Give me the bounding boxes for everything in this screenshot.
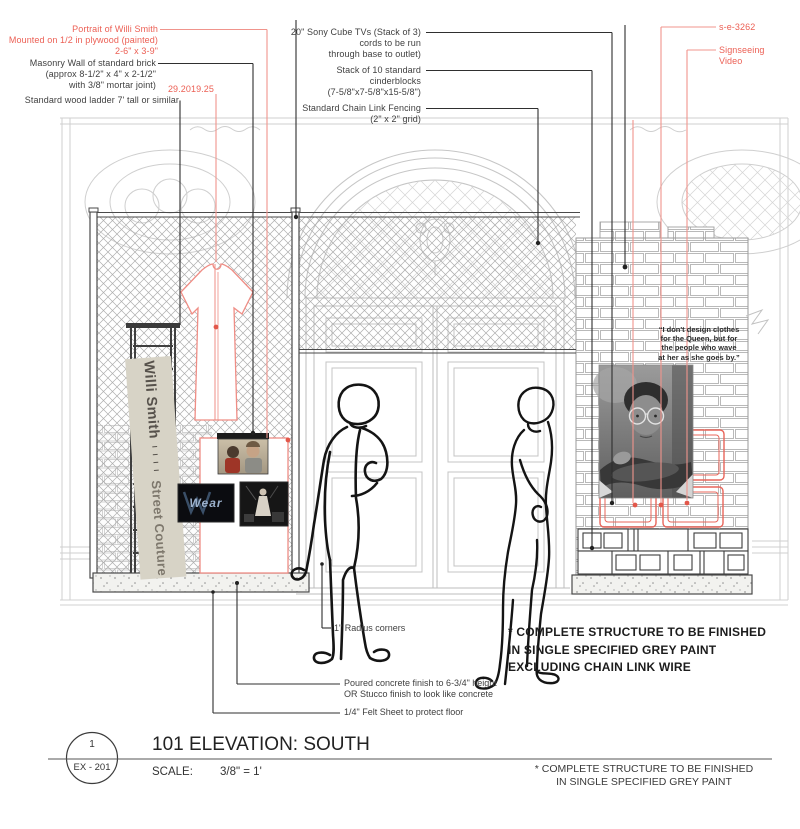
willi-smith-portrait <box>593 365 693 498</box>
annotation-video-id: s-e-3262 <box>719 22 789 33</box>
annotation-line: through base to outlet) <box>0 49 421 60</box>
annotation-line: Stack of 10 standard <box>0 65 421 76</box>
annotation-concrete: Poured concrete finish to 6-3/4" height … <box>344 678 497 700</box>
finish-note-small: * COMPLETE STRUCTURE TO BE FINISHED IN S… <box>516 763 772 789</box>
annotation-cinderblocks: Stack of 10 standard cinderblocks (7-5/8… <box>0 65 421 98</box>
wear-screen-label: Wear <box>181 489 231 517</box>
leader-lines-red <box>160 27 716 503</box>
drawing-title: 101 ELEVATION: SOUTH <box>152 734 370 756</box>
quote-line: for the Queen, but for <box>636 334 762 343</box>
annotation-line: cinderblocks <box>0 76 421 87</box>
annotation-line: (2" x 2" grid) <box>0 114 421 125</box>
finish-note-small-line: IN SINGLE SPECIFIED GREY PAINT <box>516 776 772 789</box>
annotation-line: Poured concrete finish to 6-3/4" height <box>344 678 497 689</box>
finish-note: * COMPLETE STRUCTURE TO BE FINISHED IN S… <box>508 624 788 677</box>
scale-label: SCALE: <box>152 766 193 778</box>
drawing-number: 1 <box>67 739 117 750</box>
sheet-number: EX - 201 <box>62 762 122 773</box>
annotation-line: OR Stucco finish to look like concrete <box>344 689 497 700</box>
annotation-felt: 1/4" Felt Sheet to protect floor <box>344 707 463 718</box>
willi-smith-quote: “I don't design clothes for the Queen, b… <box>636 325 762 362</box>
annotation-tvs: 20" Sony Cube TVs (Stack of 3) cords to … <box>0 27 421 60</box>
annotation-line: cords to be run <box>0 38 421 49</box>
finish-note-small-line: * COMPLETE STRUCTURE TO BE FINISHED <box>516 763 772 776</box>
annotation-line: Standard Chain Link Fencing <box>0 103 421 114</box>
annotation-line: 20" Sony Cube TVs (Stack of 3) <box>0 27 421 38</box>
annotation-fencing: Standard Chain Link Fencing (2" x 2" gri… <box>0 103 421 125</box>
annotation-signseeing: Signseeing Video <box>719 45 789 67</box>
quote-line: the people who wave <box>636 343 762 352</box>
elevation-sheet: Willi Smith I I I I Street Couture <box>0 0 800 829</box>
annotation-radius: 1" Radius corners <box>334 623 405 634</box>
quote-line: at her as she goes by.” <box>636 353 762 362</box>
annotation-line: (7-5/8"x7-5/8"x15-5/8") <box>0 87 421 98</box>
annotation-line: Video <box>719 56 789 67</box>
annotation-line: Signseeing <box>719 45 789 56</box>
quote-line: “I don't design clothes <box>636 325 762 334</box>
figure-sketch-left <box>292 385 389 663</box>
finish-note-line: EXCLUDING CHAIN LINK WIRE <box>508 659 788 677</box>
scale-value: 3/8" = 1' <box>220 766 262 778</box>
finish-note-line: IN SINGLE SPECIFIED GREY PAINT <box>508 642 788 660</box>
finish-note-line: * COMPLETE STRUCTURE TO BE FINISHED <box>508 624 788 642</box>
shirt-artwork <box>181 264 253 420</box>
